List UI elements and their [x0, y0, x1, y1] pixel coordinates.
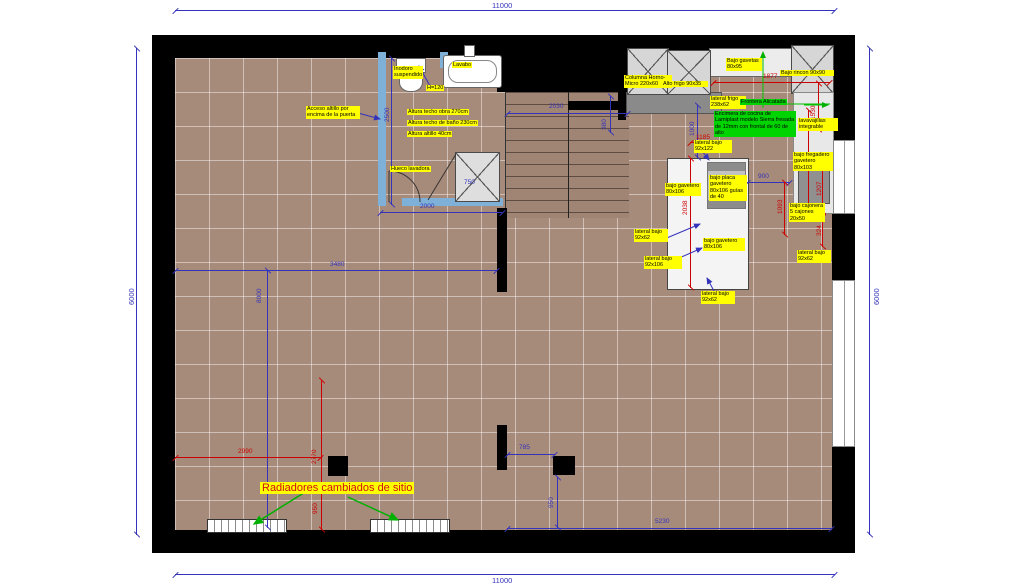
- annotation-overlay: [0, 0, 1024, 588]
- leader-acceso: [358, 113, 380, 119]
- dim-785: 785: [519, 444, 530, 451]
- green-arrow-radiator-left: [254, 489, 310, 524]
- dim-1207: 1207: [816, 182, 823, 196]
- label-lavavajillas: lavavajillas integrable: [798, 118, 838, 131]
- dim-2030: 2030: [549, 103, 563, 110]
- outer-dim-left: 6000: [127, 288, 136, 305]
- label-lateral-bajo-left2: lateral bajo 92x106: [644, 256, 682, 269]
- label-bajo-fregadero: bajo fregadero gavetero 80x103: [793, 152, 833, 171]
- label-alto-frigo: Alto frigo 90x35: [662, 81, 708, 87]
- dim-2000: 2000: [420, 203, 434, 210]
- dim-950-red: 950: [312, 503, 319, 514]
- label-lateral-bajo-right: lateral bajo 92x62: [797, 250, 831, 263]
- dim-750: 750: [464, 179, 475, 186]
- label-frontera: Frontera Alicatada: [740, 99, 787, 105]
- label-inodoro: Inodoro suspendido: [393, 66, 423, 79]
- label-altura-obra: Altura techo obra 270cm: [407, 109, 469, 115]
- label-lateral-bajo-bottom: lateral bajo 92x62: [701, 291, 735, 304]
- label-radiadores: Radiadores cambiados de sitio: [260, 482, 414, 494]
- dim-2038: 2038: [682, 201, 689, 215]
- label-hueco-lavadora: Hueco lavadora: [390, 166, 431, 172]
- floor-plan-canvas: 11000 11000 6000 6000: [0, 0, 1024, 588]
- label-bajo-placa: bajo placa gavetero 80x106 guías de 40: [709, 175, 747, 201]
- label-altura-bano: Altura techo de baño 230cm: [407, 120, 478, 126]
- dim-1093: 1093: [777, 200, 784, 214]
- label-lateral-bajo-left1: lateral bajo 92x62: [634, 229, 668, 242]
- bath-door-arc: [389, 171, 420, 202]
- dim-900: 900: [758, 173, 769, 180]
- label-bajo-gavetero-lower: bajo gavetero 80x106: [703, 238, 745, 251]
- dim-8000: 8000: [256, 289, 263, 303]
- dim-2770: 2770: [311, 450, 318, 464]
- label-acceso-altillo: Acceso altillo por encima de la puerta: [306, 106, 360, 119]
- dim-380: 380: [601, 119, 608, 130]
- shower-door-line: [428, 154, 456, 200]
- label-encimera: Encimera de cocina de Lamiplast modelo S…: [714, 111, 796, 137]
- outer-dim-top: 11000: [492, 1, 512, 10]
- dim-1877: 1877: [763, 73, 777, 80]
- dim-2500: 2500: [384, 108, 391, 122]
- label-altura-altillo: Altura altillo 40cm: [407, 131, 452, 137]
- label-lavabo: Lavabo: [452, 62, 472, 68]
- dim-324: 324: [816, 225, 823, 236]
- dim-5230: 5230: [655, 518, 669, 525]
- label-bajo-gavetero-left: bajo gavetero 80x106: [665, 183, 701, 196]
- green-arrow-radiator-right: [348, 497, 398, 520]
- leader-lateral-bottom: [707, 278, 714, 291]
- dim-1000: 1000: [689, 122, 696, 136]
- outer-dim-bottom: 11000: [492, 576, 512, 585]
- label-bajo-rincon: Bajo rincon 90x90: [780, 70, 834, 76]
- dim-2990: 2990: [238, 448, 252, 455]
- dim-950-blue: 950: [548, 497, 555, 508]
- label-bajo-gavetas: Bajo gavetas 80x95: [726, 58, 762, 71]
- dim-3480: 3480: [330, 261, 344, 268]
- label-h120: H=120: [426, 85, 444, 91]
- label-lateral-bajo-92x122: lateral bajo 92x122: [694, 140, 732, 153]
- label-bajo-cajonera: bajo cajonera 5 cajones 20x50: [789, 203, 825, 222]
- outer-dim-right: 6000: [872, 288, 881, 305]
